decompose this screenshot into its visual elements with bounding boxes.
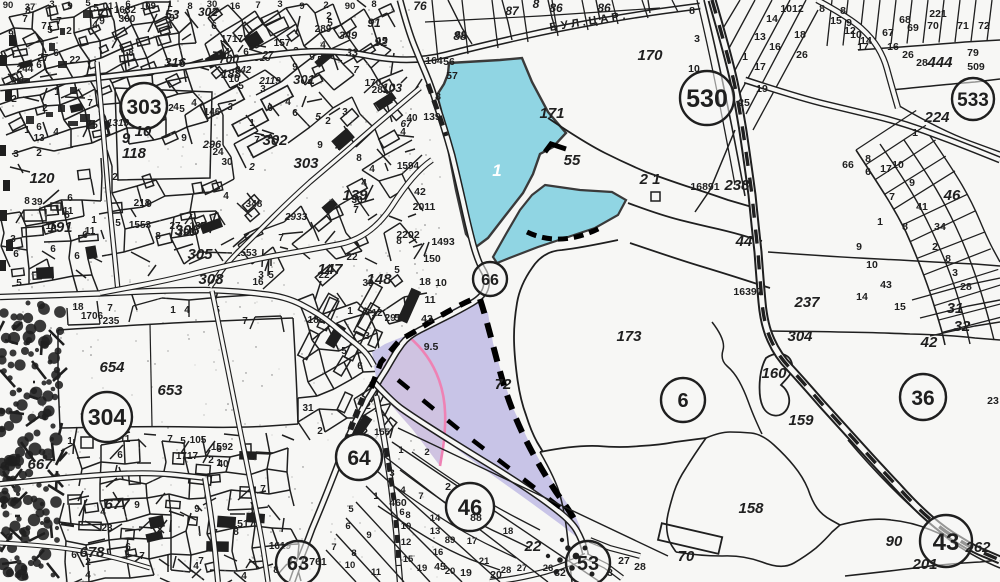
svg-text:88: 88 [455, 29, 467, 41]
svg-text:10: 10 [850, 29, 862, 41]
svg-text:238: 238 [723, 177, 750, 194]
svg-text:90: 90 [3, 0, 14, 11]
svg-text:1: 1 [91, 215, 97, 226]
svg-text:139: 139 [342, 187, 368, 204]
svg-text:6: 6 [357, 361, 363, 372]
svg-text:19: 19 [756, 83, 768, 95]
svg-text:88: 88 [470, 512, 482, 524]
svg-text:8: 8 [902, 221, 908, 233]
svg-text:71: 71 [957, 20, 969, 32]
svg-text:31: 31 [947, 300, 964, 317]
svg-text:20: 20 [490, 569, 502, 581]
svg-text:6: 6 [13, 249, 19, 260]
svg-text:677: 677 [104, 496, 130, 513]
svg-text:86: 86 [549, 1, 563, 15]
svg-text:89: 89 [445, 535, 456, 546]
svg-text:67: 67 [882, 27, 894, 39]
svg-text:7: 7 [56, 16, 62, 27]
svg-text:2: 2 [325, 116, 331, 127]
svg-text:32: 32 [554, 567, 566, 579]
svg-text:7: 7 [255, 0, 260, 11]
svg-text:667: 667 [27, 456, 53, 473]
svg-text:761: 761 [309, 556, 327, 568]
svg-text:9: 9 [134, 500, 140, 511]
svg-text:41: 41 [916, 201, 928, 213]
svg-text:7: 7 [107, 303, 113, 314]
svg-text:8: 8 [840, 5, 846, 17]
svg-text:72: 72 [495, 376, 512, 393]
svg-text:12: 12 [371, 308, 383, 319]
svg-text:7: 7 [87, 98, 93, 109]
svg-text:22: 22 [524, 538, 542, 555]
svg-text:30: 30 [207, 0, 218, 10]
svg-text:5: 5 [348, 504, 354, 515]
svg-text:348: 348 [246, 199, 263, 210]
svg-text:158: 158 [738, 500, 764, 517]
svg-text:87: 87 [505, 4, 520, 18]
svg-text:3: 3 [49, 0, 54, 10]
svg-text:262: 262 [964, 539, 991, 556]
svg-text:1012: 1012 [780, 3, 804, 15]
svg-text:4: 4 [223, 191, 229, 202]
svg-text:5: 5 [47, 25, 53, 36]
svg-text:235: 235 [103, 316, 120, 327]
svg-text:46: 46 [943, 187, 961, 204]
svg-text:4: 4 [369, 164, 375, 175]
svg-text:109: 109 [140, 1, 156, 12]
svg-text:2202: 2202 [396, 229, 420, 241]
svg-text:296: 296 [202, 139, 222, 151]
svg-text:14: 14 [766, 13, 778, 25]
svg-text:147: 147 [317, 261, 343, 278]
svg-text:237: 237 [793, 294, 820, 311]
svg-text:8: 8 [356, 153, 362, 164]
svg-text:8: 8 [187, 1, 192, 12]
svg-text:9: 9 [181, 133, 187, 144]
svg-text:9.5: 9.5 [424, 341, 439, 353]
svg-text:22: 22 [346, 252, 358, 263]
svg-text:22: 22 [69, 55, 81, 66]
svg-text:5: 5 [115, 218, 121, 229]
svg-text:67: 67 [400, 119, 412, 130]
svg-text:12: 12 [401, 537, 412, 548]
svg-text:170: 170 [637, 47, 663, 64]
svg-text:6: 6 [125, 0, 130, 10]
svg-text:1: 1 [398, 445, 404, 456]
svg-text:191: 191 [47, 219, 72, 236]
svg-text:8: 8 [128, 48, 134, 59]
svg-text:57: 57 [446, 70, 458, 82]
svg-text:7: 7 [278, 233, 284, 244]
svg-text:17: 17 [857, 41, 869, 53]
svg-text:20: 20 [445, 566, 456, 577]
svg-text:4: 4 [400, 485, 406, 496]
svg-text:5: 5 [315, 112, 321, 123]
svg-text:13: 13 [754, 31, 766, 43]
svg-text:69: 69 [907, 22, 919, 34]
svg-text:700: 700 [219, 52, 239, 66]
svg-text:16: 16 [887, 41, 899, 53]
svg-text:8: 8 [533, 0, 540, 11]
svg-text:1: 1 [347, 306, 353, 317]
svg-text:2 1: 2 1 [639, 171, 661, 188]
svg-text:6: 6 [125, 542, 131, 553]
svg-text:105: 105 [190, 435, 207, 446]
svg-text:8: 8 [819, 3, 825, 15]
svg-text:3: 3 [694, 33, 700, 45]
svg-text:27: 27 [517, 563, 528, 574]
svg-text:1493: 1493 [431, 236, 455, 248]
svg-text:1517: 1517 [231, 518, 255, 530]
svg-text:3: 3 [277, 0, 282, 10]
svg-text:533: 533 [957, 90, 989, 111]
svg-text:1717: 1717 [221, 34, 244, 45]
svg-text:6: 6 [50, 244, 56, 255]
svg-text:10: 10 [866, 259, 878, 271]
svg-text:92: 92 [374, 35, 388, 49]
svg-text:9: 9 [846, 17, 852, 29]
svg-text:4: 4 [85, 570, 91, 581]
svg-text:5: 5 [93, 3, 99, 14]
svg-text:91: 91 [367, 16, 381, 30]
svg-text:6: 6 [74, 251, 80, 262]
svg-text:1: 1 [24, 125, 30, 136]
svg-text:2011: 2011 [413, 201, 436, 213]
svg-text:6: 6 [67, 193, 73, 204]
svg-text:2: 2 [932, 241, 938, 253]
svg-text:303: 303 [293, 155, 319, 172]
svg-text:304: 304 [88, 404, 127, 430]
svg-text:160: 160 [761, 365, 787, 382]
svg-text:43: 43 [880, 279, 892, 291]
svg-text:7: 7 [353, 65, 359, 76]
svg-text:7: 7 [242, 316, 248, 327]
svg-text:6: 6 [82, 230, 88, 241]
svg-text:10: 10 [892, 159, 904, 171]
svg-text:530: 530 [686, 85, 728, 113]
svg-text:10: 10 [688, 63, 700, 75]
svg-text:26: 26 [543, 563, 554, 574]
svg-text:3: 3 [227, 102, 233, 113]
svg-text:8: 8 [945, 253, 951, 265]
svg-text:4: 4 [92, 20, 98, 31]
svg-text:1: 1 [170, 305, 176, 316]
svg-text:19: 19 [417, 563, 428, 574]
svg-text:6: 6 [36, 122, 42, 133]
svg-text:10: 10 [135, 123, 152, 140]
svg-text:300: 300 [119, 14, 136, 25]
svg-text:2: 2 [323, 0, 328, 11]
svg-text:2: 2 [36, 148, 42, 159]
svg-text:7: 7 [198, 556, 204, 567]
svg-text:8: 8 [405, 510, 410, 521]
svg-text:63: 63 [287, 553, 309, 575]
svg-text:244: 244 [17, 64, 34, 75]
svg-text:509: 509 [967, 61, 985, 73]
svg-text:444: 444 [926, 54, 953, 71]
svg-text:13: 13 [33, 133, 45, 144]
svg-text:18: 18 [794, 29, 806, 41]
svg-text:164: 164 [425, 55, 443, 67]
svg-text:4: 4 [334, 142, 341, 153]
svg-text:6: 6 [292, 108, 298, 119]
svg-text:18: 18 [72, 302, 84, 313]
svg-text:01: 01 [103, 1, 114, 12]
svg-text:28: 28 [501, 565, 512, 576]
svg-text:118: 118 [122, 145, 147, 162]
svg-text:16891: 16891 [690, 181, 719, 193]
svg-text:16397: 16397 [733, 286, 762, 298]
svg-text:42: 42 [920, 334, 938, 351]
svg-text:9: 9 [366, 530, 371, 541]
svg-text:6: 6 [345, 521, 350, 532]
svg-text:14: 14 [856, 291, 868, 303]
svg-text:2119: 2119 [258, 76, 281, 87]
svg-text:4: 4 [184, 305, 190, 316]
svg-text:3: 3 [364, 331, 370, 342]
svg-text:5: 5 [317, 55, 323, 66]
svg-text:2: 2 [248, 162, 255, 173]
svg-text:8: 8 [24, 196, 30, 207]
svg-text:139: 139 [423, 111, 441, 123]
svg-text:301: 301 [293, 72, 315, 87]
svg-text:17: 17 [880, 163, 892, 175]
svg-text:1: 1 [216, 458, 222, 469]
svg-text:43: 43 [421, 313, 433, 325]
svg-text:3: 3 [389, 468, 394, 479]
svg-text:289: 289 [315, 24, 332, 35]
svg-text:66: 66 [842, 159, 854, 171]
svg-text:3: 3 [607, 567, 613, 579]
svg-text:942: 942 [235, 65, 252, 76]
svg-text:396: 396 [177, 227, 196, 239]
svg-text:64: 64 [347, 447, 371, 470]
svg-text:150: 150 [423, 253, 441, 265]
svg-text:19: 19 [460, 567, 472, 579]
svg-text:3: 3 [342, 107, 348, 118]
svg-text:5: 5 [268, 270, 274, 281]
svg-text:173: 173 [616, 328, 642, 345]
svg-text:66: 66 [481, 272, 499, 289]
svg-text:15: 15 [894, 301, 906, 313]
svg-text:42: 42 [414, 186, 426, 198]
svg-text:10: 10 [435, 277, 447, 289]
svg-text:9: 9 [99, 16, 105, 27]
svg-text:1: 1 [912, 127, 918, 139]
svg-text:15: 15 [403, 554, 414, 565]
svg-text:36: 36 [911, 387, 934, 410]
svg-text:56: 56 [443, 56, 455, 68]
svg-text:21: 21 [479, 556, 490, 567]
svg-text:16: 16 [230, 1, 241, 12]
svg-text:349: 349 [339, 30, 358, 42]
svg-text:26: 26 [796, 49, 808, 61]
svg-text:25: 25 [738, 97, 750, 109]
svg-text:3: 3 [952, 267, 958, 279]
svg-text:53: 53 [577, 553, 599, 575]
svg-text:28: 28 [960, 281, 972, 293]
svg-text:8: 8 [865, 153, 871, 165]
svg-text:5: 5 [85, 0, 91, 9]
svg-text:1592: 1592 [211, 442, 234, 453]
svg-text:1: 1 [492, 161, 501, 180]
svg-text:6: 6 [216, 444, 222, 455]
svg-text:43: 43 [933, 529, 960, 556]
svg-text:1: 1 [54, 87, 60, 98]
svg-text:8: 8 [371, 0, 376, 10]
svg-text:308: 308 [198, 271, 224, 288]
svg-text:2: 2 [66, 26, 72, 37]
svg-text:2: 2 [424, 447, 429, 458]
svg-text:7: 7 [889, 191, 895, 203]
svg-text:8: 8 [351, 548, 356, 559]
svg-text:90: 90 [345, 1, 356, 12]
svg-text:55: 55 [564, 152, 581, 169]
svg-text:5: 5 [16, 278, 22, 289]
svg-text:224: 224 [923, 109, 950, 126]
svg-text:305: 305 [187, 246, 213, 263]
svg-text:304: 304 [787, 328, 813, 345]
svg-text:90: 90 [886, 533, 903, 550]
svg-text:159: 159 [788, 412, 814, 429]
svg-text:302: 302 [262, 132, 288, 149]
svg-text:5: 5 [179, 104, 185, 115]
svg-text:1717: 1717 [176, 451, 199, 462]
svg-text:23: 23 [101, 523, 113, 534]
svg-text:1319: 1319 [107, 118, 130, 129]
svg-text:8: 8 [155, 231, 161, 242]
svg-text:1706: 1706 [81, 311, 104, 322]
svg-text:70: 70 [927, 20, 939, 32]
svg-text:2933: 2933 [284, 212, 308, 223]
svg-text:30: 30 [221, 157, 233, 168]
svg-text:6: 6 [211, 21, 217, 32]
svg-text:28: 28 [916, 57, 928, 69]
svg-text:44: 44 [735, 233, 753, 250]
svg-text:5: 5 [394, 265, 400, 276]
svg-text:316: 316 [164, 55, 186, 70]
svg-text:27: 27 [618, 555, 630, 567]
svg-text:7: 7 [353, 205, 359, 216]
svg-text:1: 1 [877, 216, 883, 228]
svg-text:10: 10 [345, 560, 356, 571]
svg-text:9: 9 [67, 1, 72, 12]
svg-text:221: 221 [929, 8, 947, 20]
svg-text:2: 2 [317, 426, 323, 437]
svg-text:79: 79 [967, 47, 979, 59]
svg-text:9: 9 [299, 1, 304, 12]
svg-text:6: 6 [36, 60, 42, 71]
svg-text:460: 460 [389, 497, 407, 509]
svg-text:120: 120 [29, 170, 55, 187]
svg-text:6: 6 [677, 390, 688, 412]
svg-text:33: 33 [346, 47, 358, 59]
svg-text:45: 45 [434, 561, 446, 573]
svg-text:5: 5 [341, 346, 347, 357]
svg-text:27: 27 [261, 50, 274, 61]
svg-text:10: 10 [401, 521, 412, 532]
svg-text:103: 103 [382, 81, 402, 95]
svg-text:37: 37 [25, 2, 36, 13]
svg-text:76: 76 [413, 0, 427, 13]
svg-text:148: 148 [366, 271, 392, 288]
svg-text:3: 3 [13, 149, 19, 160]
svg-text:9: 9 [146, 199, 152, 210]
svg-text:653: 653 [157, 382, 183, 399]
svg-text:7: 7 [260, 484, 266, 495]
svg-text:18: 18 [503, 526, 514, 537]
svg-text:1553: 1553 [129, 220, 152, 231]
svg-text:39: 39 [31, 197, 43, 208]
svg-text:9: 9 [909, 177, 915, 189]
svg-text:6: 6 [117, 450, 123, 461]
svg-text:2: 2 [11, 94, 17, 105]
svg-text:303: 303 [126, 96, 161, 119]
svg-text:4: 4 [53, 127, 59, 138]
svg-text:155: 155 [374, 427, 391, 438]
svg-text:9: 9 [856, 241, 862, 253]
svg-text:1: 1 [167, 0, 173, 10]
svg-text:7: 7 [22, 14, 28, 25]
svg-text:11: 11 [424, 294, 435, 306]
svg-text:26: 26 [902, 49, 914, 61]
svg-text:654: 654 [99, 359, 125, 376]
svg-text:23: 23 [987, 395, 999, 407]
svg-text:32: 32 [954, 318, 971, 335]
svg-text:17: 17 [754, 61, 766, 73]
svg-text:4: 4 [193, 561, 199, 572]
svg-text:28: 28 [634, 561, 646, 573]
svg-text:14: 14 [430, 513, 441, 524]
svg-text:13: 13 [430, 526, 441, 537]
svg-text:86: 86 [597, 1, 611, 15]
svg-text:1: 1 [742, 51, 748, 63]
svg-text:31: 31 [302, 403, 314, 414]
svg-text:18: 18 [419, 276, 431, 288]
svg-text:201: 201 [911, 556, 937, 573]
svg-text:291: 291 [385, 313, 402, 324]
svg-text:17: 17 [467, 536, 478, 547]
svg-text:171: 171 [539, 105, 564, 122]
svg-text:7: 7 [331, 542, 336, 553]
svg-text:72: 72 [978, 20, 990, 32]
svg-text:34: 34 [934, 221, 946, 233]
svg-text:2: 2 [208, 455, 214, 466]
svg-text:678: 678 [79, 544, 105, 561]
svg-text:8: 8 [435, 91, 441, 103]
svg-text:1: 1 [373, 491, 379, 502]
svg-text:7: 7 [418, 491, 423, 502]
svg-text:16: 16 [769, 41, 781, 53]
svg-text:9: 9 [122, 130, 131, 147]
svg-text:2: 2 [445, 481, 451, 493]
svg-text:16: 16 [433, 547, 444, 558]
svg-text:3: 3 [258, 270, 264, 281]
svg-text:70: 70 [678, 548, 695, 565]
svg-text:7: 7 [167, 434, 173, 445]
svg-text:9: 9 [317, 140, 323, 151]
svg-text:8: 8 [689, 5, 695, 17]
svg-text:1: 1 [67, 436, 73, 447]
svg-text:6: 6 [865, 166, 871, 178]
svg-text:157: 157 [274, 38, 291, 49]
svg-text:11: 11 [371, 567, 382, 578]
